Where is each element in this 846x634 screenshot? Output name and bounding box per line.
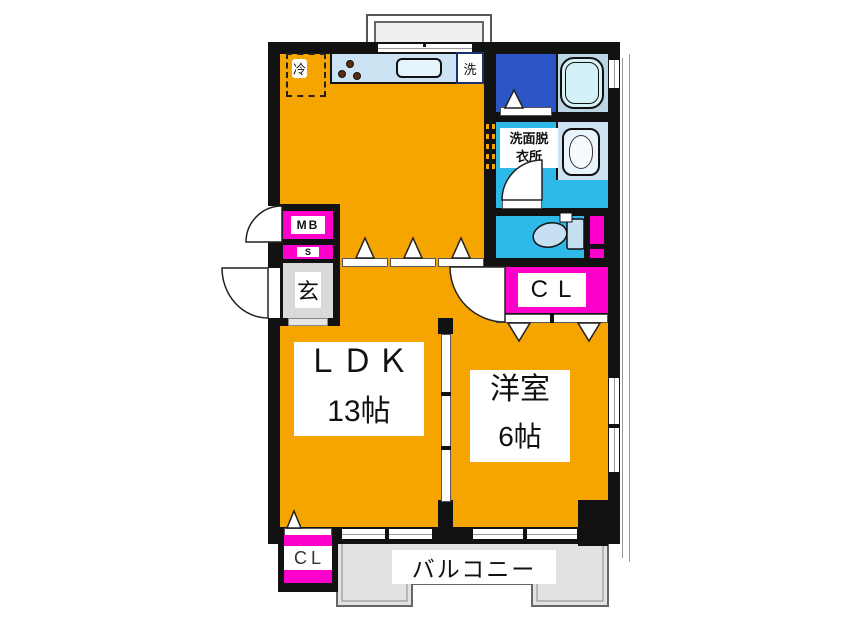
closet-right-triangle (578, 323, 600, 341)
ldk-door-arc (450, 267, 505, 322)
floor-plan: MB S 玄 CL CL 冷 洗 洗面脱衣所 ＬＤＫ13帖 洋室6帖 バルコニー (0, 0, 846, 634)
closet-right-triangle (508, 323, 530, 341)
plan-symbols (0, 0, 846, 634)
entrance-door-arc (222, 268, 268, 318)
partition-triangle (404, 238, 422, 258)
closet-bottom-triangle (287, 511, 301, 528)
toilet-icon (531, 213, 584, 250)
partition-triangle (356, 238, 374, 258)
partition-triangle (452, 238, 470, 258)
bathroom-door-triangle (505, 90, 523, 108)
washroom-door-arc (502, 160, 542, 200)
meter-box-door-arc (246, 206, 282, 242)
